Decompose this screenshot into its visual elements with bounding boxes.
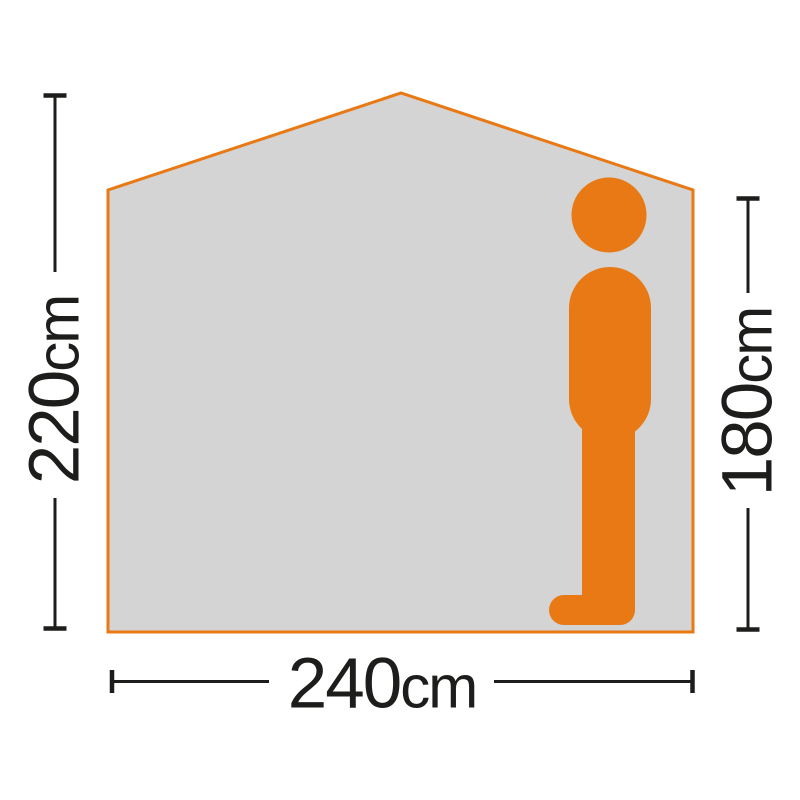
tent-height-unit: cm [25,296,92,372]
tent-width-unit: cm [400,654,476,721]
tent-height-label: 220cm [20,296,91,484]
tent-height-value: 220 [16,372,95,484]
tent-width-label: 240cm [288,649,476,720]
tent-width-value: 240 [288,645,400,724]
person-height-label: 180cm [713,308,784,496]
person-foot [549,595,635,625]
dimension-diagram: 220cm 180cm 240cm [0,0,800,800]
person-head [572,178,647,253]
person-leg [582,405,635,610]
person-height-value: 180 [709,384,788,496]
person-height-unit: cm [718,308,785,384]
